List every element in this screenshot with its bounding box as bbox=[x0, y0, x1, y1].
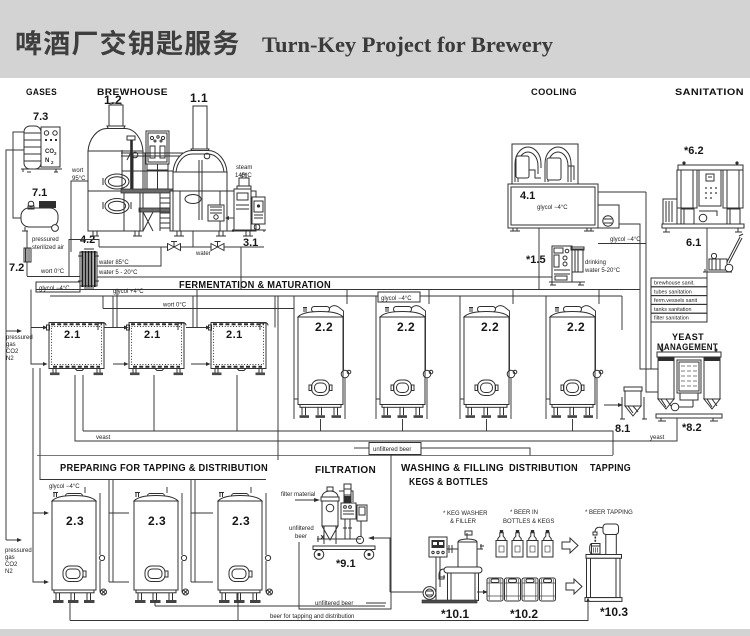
svg-text:beer: beer bbox=[295, 534, 307, 540]
svg-text:CO2: CO2 bbox=[5, 562, 18, 568]
svg-text:MANAGEMENT: MANAGEMENT bbox=[657, 342, 718, 353]
svg-text:ferm.vessels sanit: ferm.vessels sanit bbox=[654, 298, 698, 304]
svg-text:N2: N2 bbox=[5, 569, 13, 575]
svg-text:glycol −4°C: glycol −4°C bbox=[610, 237, 641, 243]
svg-text:glycol +4°C: glycol +4°C bbox=[113, 289, 144, 295]
svg-text:8.1: 8.1 bbox=[615, 423, 630, 435]
svg-text:1.1: 1.1 bbox=[190, 91, 208, 105]
svg-text:brewhouse sanit.: brewhouse sanit. bbox=[654, 281, 695, 287]
svg-text:2.3: 2.3 bbox=[148, 514, 166, 528]
svg-text:water 5-20°C: water 5-20°C bbox=[584, 268, 621, 274]
svg-text:glycol −4°C: glycol −4°C bbox=[39, 286, 70, 292]
svg-text:water 5 - 20°C: water 5 - 20°C bbox=[98, 270, 138, 276]
svg-text:GASES: GASES bbox=[26, 87, 57, 98]
svg-text:*8.2: *8.2 bbox=[682, 422, 702, 434]
svg-text:* BEER TAPPING: * BEER TAPPING bbox=[585, 510, 633, 516]
svg-text:DISTRIBUTION: DISTRIBUTION bbox=[509, 463, 578, 474]
svg-text:gas: gas bbox=[5, 555, 15, 561]
svg-text:3.1: 3.1 bbox=[243, 237, 258, 249]
svg-text:pressured: pressured bbox=[32, 237, 59, 243]
svg-text:glycol −4°C: glycol −4°C bbox=[49, 484, 80, 490]
svg-text:2.1: 2.1 bbox=[64, 329, 81, 341]
svg-text:filter material: filter material bbox=[281, 492, 315, 498]
svg-text:steam: steam bbox=[236, 165, 252, 171]
svg-text:7.1: 7.1 bbox=[32, 187, 47, 199]
svg-text:N2: N2 bbox=[6, 356, 14, 362]
svg-text:Turn-Key Project for Brewery: Turn-Key Project for Brewery bbox=[262, 32, 554, 57]
svg-text:* BEER IN: * BEER IN bbox=[510, 510, 538, 516]
svg-text:N: N bbox=[45, 158, 49, 164]
svg-text:COOLING: COOLING bbox=[531, 87, 577, 98]
svg-text:unfiltered: unfiltered bbox=[289, 526, 314, 532]
svg-text:2.2: 2.2 bbox=[567, 320, 585, 334]
svg-text:wort: wort bbox=[71, 168, 84, 174]
svg-text:pressured: pressured bbox=[6, 335, 33, 341]
svg-text:glycol −4°C: glycol −4°C bbox=[537, 205, 568, 211]
svg-text:*10.1: *10.1 bbox=[441, 607, 469, 621]
svg-text:7.3: 7.3 bbox=[33, 111, 48, 123]
svg-text:2.1: 2.1 bbox=[226, 329, 243, 341]
svg-text:sterilized air: sterilized air bbox=[32, 245, 64, 251]
svg-text:pressured: pressured bbox=[5, 548, 32, 554]
svg-text:*6.2: *6.2 bbox=[684, 145, 704, 157]
svg-text:unfiltered beer: unfiltered beer bbox=[373, 447, 411, 453]
svg-text:BOTTLES & KEGS: BOTTLES & KEGS bbox=[503, 519, 554, 525]
svg-text:beer for tapping and distribut: beer for tapping and distribution bbox=[270, 614, 354, 620]
svg-text:95°C: 95°C bbox=[72, 176, 86, 182]
svg-text:CO: CO bbox=[45, 149, 54, 155]
svg-text:water: water bbox=[195, 251, 211, 257]
svg-text:wort 0°C: wort 0°C bbox=[162, 303, 187, 309]
svg-text:drinking: drinking bbox=[585, 260, 606, 266]
svg-text:water 85°C: water 85°C bbox=[98, 260, 129, 266]
svg-text:7.2: 7.2 bbox=[9, 262, 24, 274]
svg-text:WASHING & FILLING: WASHING & FILLING bbox=[401, 463, 504, 474]
svg-text:2.2: 2.2 bbox=[481, 320, 499, 334]
svg-text:2.3: 2.3 bbox=[66, 514, 84, 528]
svg-text:filter sanitation: filter sanitation bbox=[654, 316, 689, 322]
svg-text:CO2: CO2 bbox=[6, 349, 19, 355]
svg-text:glycol −4°C: glycol −4°C bbox=[381, 296, 412, 302]
svg-text:*1.5: *1.5 bbox=[526, 254, 546, 266]
svg-text:*10.3: *10.3 bbox=[600, 605, 628, 619]
svg-text:2.3: 2.3 bbox=[232, 514, 250, 528]
svg-text:TAPPING: TAPPING bbox=[590, 463, 631, 474]
svg-text:wort 0°C: wort 0°C bbox=[40, 269, 65, 275]
svg-text:tubes sanitation: tubes sanitation bbox=[654, 289, 692, 295]
svg-text:4.1: 4.1 bbox=[520, 190, 535, 202]
svg-text:2.1: 2.1 bbox=[144, 329, 161, 341]
svg-text:gas: gas bbox=[6, 342, 16, 348]
svg-text:KEGS & BOTTLES: KEGS & BOTTLES bbox=[409, 477, 488, 488]
svg-text:veast: veast bbox=[96, 435, 111, 441]
svg-text:*9.1: *9.1 bbox=[336, 558, 356, 570]
svg-text:SANITATION: SANITATION bbox=[675, 87, 744, 98]
svg-text:*10.2: *10.2 bbox=[510, 607, 538, 621]
svg-text:FILTRATION: FILTRATION bbox=[315, 465, 376, 476]
svg-text:2.2: 2.2 bbox=[315, 320, 333, 334]
svg-text:yeast: yeast bbox=[650, 435, 665, 441]
svg-text:PREPARING FOR TAPPING & DISTRI: PREPARING FOR TAPPING & DISTRIBUTION bbox=[60, 463, 268, 474]
svg-text:tanks sanitation: tanks sanitation bbox=[654, 307, 691, 313]
svg-text:2.2: 2.2 bbox=[397, 320, 415, 334]
svg-text:6.1: 6.1 bbox=[686, 237, 701, 249]
svg-text:& FILLER: & FILLER bbox=[450, 519, 477, 525]
svg-text:* KEG WASHER: * KEG WASHER bbox=[443, 511, 488, 517]
